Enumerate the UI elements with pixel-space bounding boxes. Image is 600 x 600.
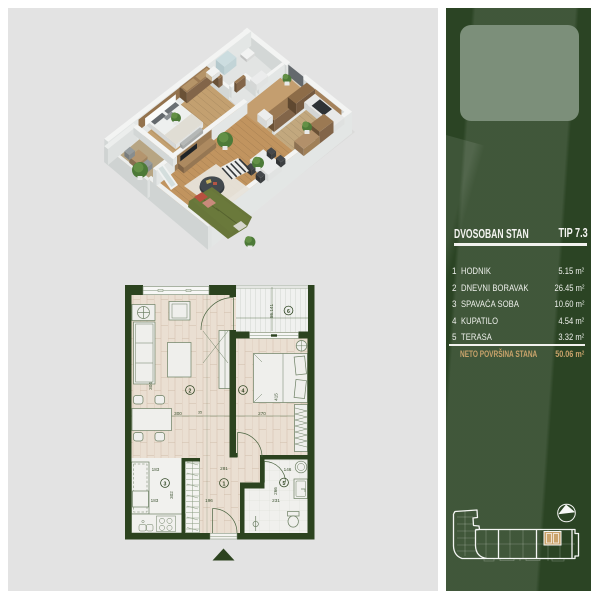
svg-text:146: 146 [284,467,292,472]
svg-text:270: 270 [258,411,266,416]
svg-text:86.141: 86.141 [269,304,274,318]
svg-text:196: 196 [205,498,213,503]
svg-text:415: 415 [274,393,279,401]
svg-text:304: 304 [148,382,153,390]
svg-text:231: 231 [272,498,280,503]
svg-text:1: 1 [223,481,226,487]
svg-text:5: 5 [283,481,286,487]
svg-text:35: 35 [198,411,202,415]
svg-text:2: 2 [189,388,192,394]
svg-text:183: 183 [151,498,159,503]
svg-text:266: 266 [273,487,278,495]
svg-text:183: 183 [152,467,160,472]
svg-text:4: 4 [242,388,245,394]
svg-text:300: 300 [174,411,182,416]
svg-text:6: 6 [287,309,290,315]
svg-text:281: 281 [220,466,228,471]
svg-text:302: 302 [169,491,174,499]
svg-text:3: 3 [164,481,167,487]
